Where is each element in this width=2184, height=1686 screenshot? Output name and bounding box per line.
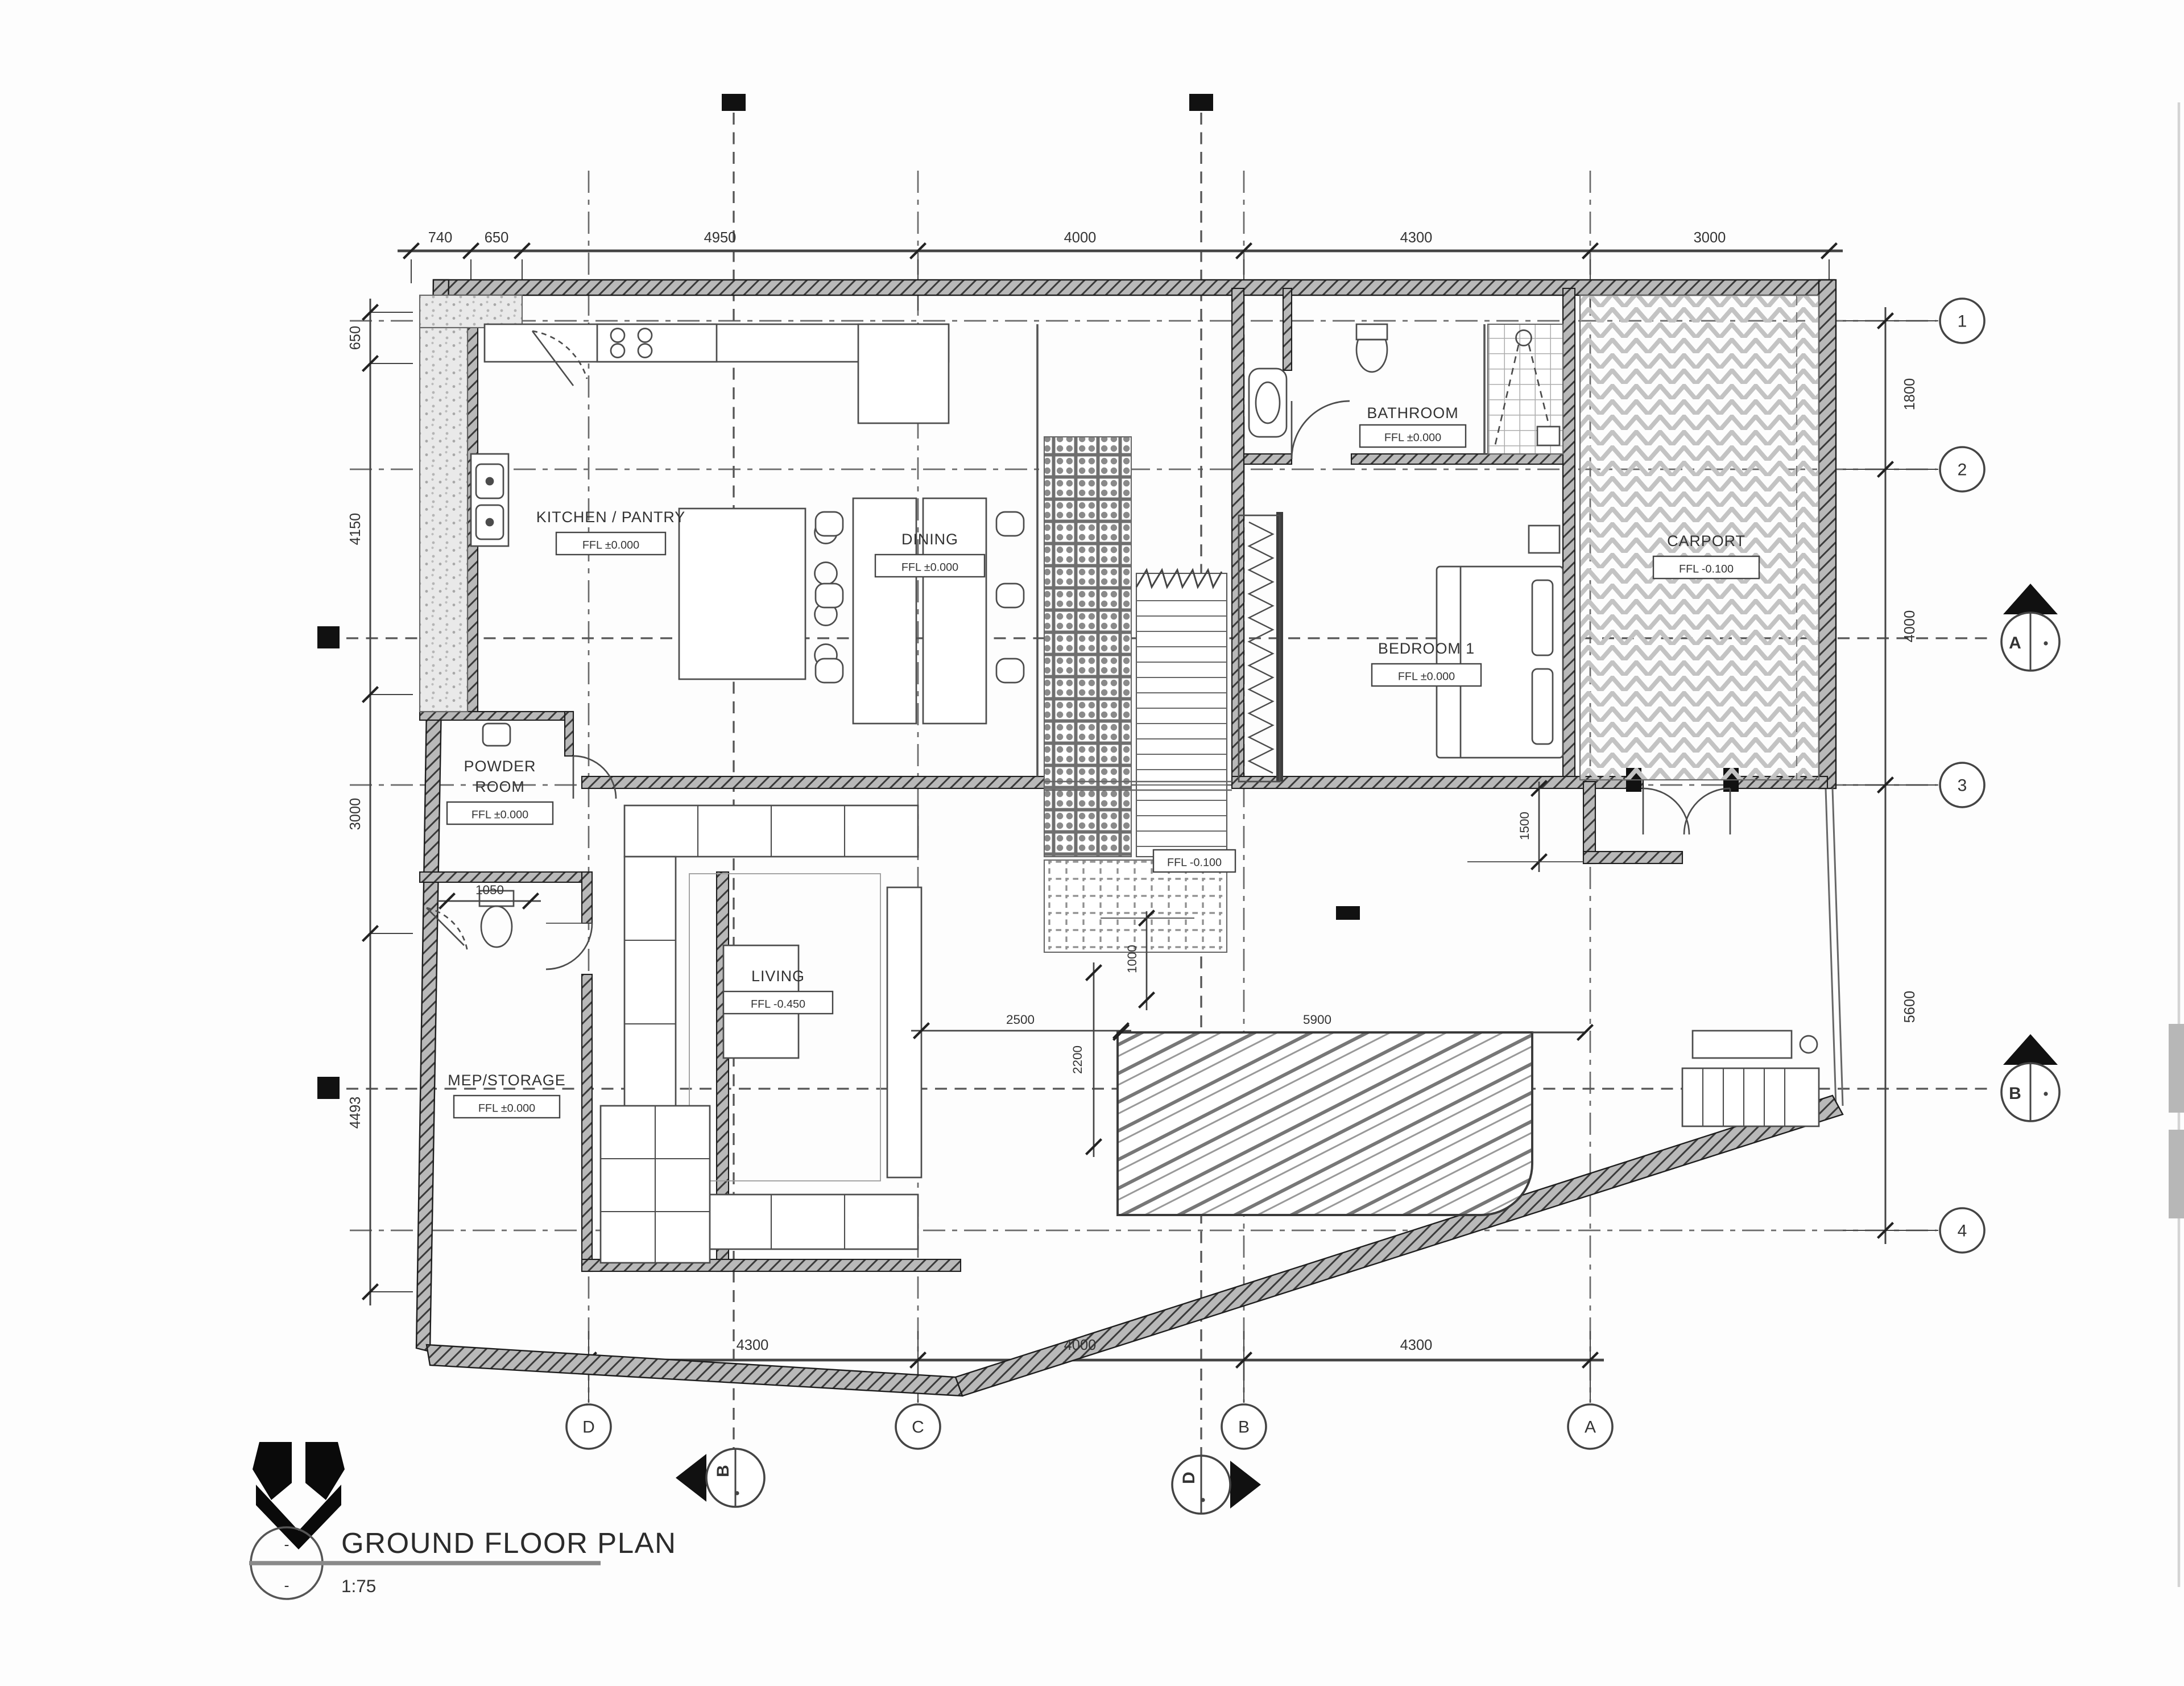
floor-plan-canvas: 1 2 3 4 D C B A A B B <box>0 0 2184 1686</box>
dim-pool-2200: 2200 <box>1070 1046 1085 1074</box>
wall-powder-top <box>420 712 573 720</box>
dim-court-1000: 1000 <box>1125 945 1139 973</box>
dim-foyer-1050: 1050 <box>475 883 504 897</box>
wall-bathroom-bottom-1 <box>1244 454 1292 464</box>
grid-row-1: 1 <box>1958 312 1967 331</box>
drawing-title: GROUND FLOOR PLAN <box>341 1527 676 1559</box>
svg-text:ROOM: ROOM <box>475 778 525 795</box>
svg-text:BEDROOM 1: BEDROOM 1 <box>1378 640 1475 657</box>
svg-text:DINING: DINING <box>901 531 958 548</box>
planter-top <box>420 295 522 328</box>
svg-text:A: A <box>2009 634 2021 652</box>
dim-pool-2500: 2500 <box>1006 1013 1035 1027</box>
ref-number-top: - <box>284 1536 289 1553</box>
grid-col-a: A <box>1585 1418 1596 1437</box>
section-line-end-square-top-d <box>1189 94 1213 111</box>
planter-left <box>420 328 468 712</box>
wall-mep-right-lower <box>582 974 592 1271</box>
svg-text:FFL ±0.000: FFL ±0.000 <box>1398 671 1455 683</box>
svg-text:BATHROOM: BATHROOM <box>1367 404 1458 421</box>
svg-text:POWDER: POWDER <box>464 758 536 775</box>
dim-bottom-4300b: 4300 <box>1400 1337 1433 1353</box>
svg-text:KITCHEN / PANTRY: KITCHEN / PANTRY <box>536 509 685 526</box>
dim-top-4950: 4950 <box>704 230 737 246</box>
section-line-end-square-top-b <box>722 94 746 111</box>
wall-grid-b <box>1232 288 1244 785</box>
dim-left-3000: 3000 <box>348 798 363 830</box>
svg-text:LIVING: LIVING <box>751 968 805 985</box>
dim-top-4300: 4300 <box>1400 230 1433 246</box>
dim-pool-5900: 5900 <box>1303 1013 1331 1027</box>
grid-row-4: 4 <box>1958 1222 1967 1241</box>
wall-mep-right-upper <box>582 872 592 923</box>
entry-court-paving <box>1044 860 1227 952</box>
wall-grid3-left <box>582 776 1044 788</box>
svg-text:D: D <box>1180 1472 1198 1484</box>
pillow-2 <box>1532 669 1553 744</box>
dim-right-5600: 5600 <box>1902 991 1918 1023</box>
drawing-scale: 1:75 <box>341 1576 376 1596</box>
wall-sink-nook <box>1283 288 1292 370</box>
column-court <box>1336 906 1360 920</box>
svg-text:FFL ±0.000: FFL ±0.000 <box>582 539 639 552</box>
tv-console <box>887 887 921 1177</box>
dim-left-4493: 4493 <box>348 1097 363 1129</box>
svg-text:FFL ±0.000: FFL ±0.000 <box>901 561 958 574</box>
svg-text:FFL -0.450: FFL -0.450 <box>751 998 805 1011</box>
svg-text:B: B <box>714 1465 733 1477</box>
wall-bathroom-bottom-2 <box>1351 454 1571 464</box>
storage-shelves <box>601 1106 710 1263</box>
section-line-end-square-left-a <box>317 626 340 648</box>
breeze-block-screen <box>1044 437 1131 857</box>
shower-drain <box>1537 427 1560 445</box>
dim-entry-1500: 1500 <box>1517 812 1532 840</box>
grid-col-b: B <box>1238 1418 1250 1437</box>
dim-top-740: 740 <box>428 230 453 246</box>
svg-text:FFL ±0.000: FFL ±0.000 <box>471 809 528 821</box>
grid-col-d: D <box>582 1418 595 1437</box>
kitchen-sink <box>471 454 508 546</box>
pillow-1 <box>1532 580 1553 655</box>
dim-top-4000: 4000 <box>1064 230 1097 246</box>
grid-row-3: 3 <box>1958 776 1967 795</box>
nightstand <box>1529 526 1560 553</box>
wall-powder-right-stub <box>565 712 573 756</box>
room-bathroom: BATHROOM FFL ±0.000 <box>1360 404 1466 447</box>
svg-text:FFL ±0.000: FFL ±0.000 <box>1384 432 1441 444</box>
dim-bottom-4000: 4000 <box>1064 1337 1097 1353</box>
section-line-end-square-left-b <box>317 1077 340 1099</box>
grid-row-2: 2 <box>1958 461 1967 480</box>
svg-text:FFL ±0.000: FFL ±0.000 <box>478 1102 535 1115</box>
wall-powder-bottom <box>420 872 582 882</box>
dim-right-1800: 1800 <box>1902 378 1918 411</box>
dim-right-4000: 4000 <box>1902 610 1918 643</box>
grid-col-c: C <box>912 1418 924 1437</box>
powder-basin <box>483 724 510 746</box>
dim-bottom-4300a: 4300 <box>737 1337 769 1353</box>
dim-top-650: 650 <box>485 230 509 246</box>
svg-text:FFL -0.100: FFL -0.100 <box>1679 563 1734 576</box>
dim-left-4150: 4150 <box>348 513 363 546</box>
ref-number-bottom: - <box>284 1577 289 1594</box>
svg-text:MEP/STORAGE: MEP/STORAGE <box>448 1072 565 1089</box>
dim-left-650: 650 <box>348 326 363 350</box>
court-level: FFL -0.100 <box>1153 850 1235 872</box>
pool <box>1118 1032 1532 1215</box>
svg-text:B: B <box>2009 1084 2021 1103</box>
wall-carport-left <box>1563 288 1575 785</box>
svg-text:CARPORT: CARPORT <box>1667 532 1745 549</box>
dim-top-3000: 3000 <box>1694 230 1726 246</box>
wall-entry-l-horizontal <box>1583 852 1682 863</box>
svg-text:FFL -0.100: FFL -0.100 <box>1167 857 1222 869</box>
